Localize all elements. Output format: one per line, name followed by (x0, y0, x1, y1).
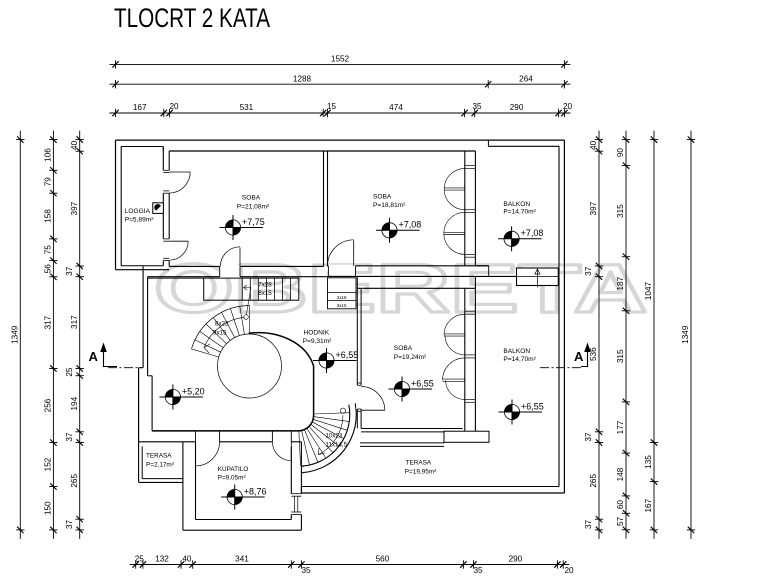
svg-text:90: 90 (616, 148, 625, 158)
svg-text:P=18,81m²: P=18,81m² (373, 202, 406, 209)
svg-text:TERASA: TERASA (406, 460, 432, 467)
svg-text:57: 57 (616, 517, 625, 527)
svg-text:3x15: 3x15 (337, 303, 347, 308)
svg-text:341: 341 (235, 555, 249, 564)
svg-text:P=19,24m²: P=19,24m² (394, 354, 427, 361)
svg-text:256: 256 (44, 398, 53, 412)
svg-text:35: 35 (301, 566, 311, 575)
svg-text:132: 132 (155, 555, 169, 564)
svg-text:194: 194 (70, 396, 79, 410)
svg-text:148: 148 (616, 467, 625, 481)
svg-text:75: 75 (44, 245, 53, 255)
svg-text:79: 79 (44, 177, 53, 187)
svg-text:1288: 1288 (293, 74, 312, 83)
svg-text:40: 40 (70, 140, 79, 150)
svg-text:265: 265 (70, 474, 79, 488)
svg-text:315: 315 (616, 349, 625, 363)
svg-text:37: 37 (65, 520, 74, 530)
svg-text:37: 37 (65, 432, 74, 442)
svg-text:20: 20 (564, 566, 574, 575)
svg-text:37: 37 (584, 266, 593, 276)
svg-text:106: 106 (44, 148, 53, 162)
svg-text:40: 40 (182, 555, 192, 564)
svg-text:KUPATILO: KUPATILO (218, 466, 249, 473)
svg-text:35: 35 (472, 102, 482, 111)
svg-text:P=2,17m²: P=2,17m² (146, 461, 174, 468)
svg-text:25: 25 (65, 367, 74, 377)
svg-text:+5,20: +5,20 (182, 386, 205, 396)
svg-text:+7,08: +7,08 (399, 220, 422, 230)
svg-text:167: 167 (644, 498, 653, 512)
svg-text:+6,55: +6,55 (336, 350, 359, 360)
svg-text:+6,55: +6,55 (411, 378, 434, 388)
svg-text:317: 317 (70, 315, 79, 329)
svg-text:SOBA: SOBA (394, 345, 413, 352)
svg-text:531: 531 (240, 103, 254, 112)
svg-text:37: 37 (584, 432, 593, 442)
svg-text:P=21,08m²: P=21,08m² (237, 203, 270, 210)
svg-text:11x14,5: 11x14,5 (326, 442, 348, 449)
svg-text:152: 152 (44, 457, 53, 471)
svg-text:8x15: 8x15 (258, 290, 272, 297)
svg-text:397: 397 (589, 201, 598, 215)
svg-text:37: 37 (65, 266, 74, 276)
svg-text:37: 37 (584, 520, 593, 530)
svg-text:560: 560 (376, 555, 390, 564)
svg-text:TLOCRT 2 KATA: TLOCRT 2 KATA (114, 3, 270, 33)
svg-text:TERASA: TERASA (146, 453, 172, 460)
svg-text:1047: 1047 (644, 281, 653, 300)
svg-text:15: 15 (327, 102, 337, 111)
svg-text:536: 536 (589, 347, 598, 361)
svg-text:SOBA: SOBA (242, 195, 261, 202)
svg-text:+7,75: +7,75 (242, 217, 265, 227)
svg-text:290: 290 (510, 103, 524, 112)
svg-text:LOGGIA: LOGGIA (125, 208, 151, 215)
svg-text:P=5,89m²: P=5,89m² (125, 217, 155, 224)
svg-text:P=14,70m²: P=14,70m² (503, 209, 536, 216)
svg-text:8x23: 8x23 (215, 321, 229, 328)
svg-text:60: 60 (616, 500, 625, 510)
svg-text:20: 20 (169, 102, 179, 111)
svg-text:150: 150 (44, 501, 53, 515)
svg-text:A: A (89, 349, 99, 364)
svg-text:P=14,70m²: P=14,70m² (503, 356, 536, 363)
svg-text:56: 56 (44, 264, 53, 274)
svg-text:P=9,05m²: P=9,05m² (218, 475, 246, 482)
svg-text:10x23: 10x23 (326, 433, 343, 440)
svg-text:BALKON: BALKON (503, 201, 530, 208)
svg-text:40: 40 (589, 140, 598, 150)
svg-text:A: A (574, 349, 584, 364)
svg-text:1349: 1349 (11, 325, 20, 344)
svg-text:167: 167 (133, 103, 147, 112)
svg-text:2x18: 2x18 (337, 295, 347, 300)
svg-text:265: 265 (589, 474, 598, 488)
svg-text:+8,76: +8,76 (244, 486, 267, 496)
svg-text:SOBA: SOBA (373, 193, 392, 200)
svg-text:9x15: 9x15 (213, 330, 227, 337)
svg-text:20: 20 (563, 102, 573, 111)
svg-text:177: 177 (616, 420, 625, 434)
svg-text:P=19,95m²: P=19,95m² (405, 468, 436, 475)
svg-text:290: 290 (509, 555, 523, 564)
svg-text:1349: 1349 (681, 325, 690, 344)
svg-text:+7,08: +7,08 (521, 228, 544, 238)
svg-text:397: 397 (70, 201, 79, 215)
svg-text:P=9,31m²: P=9,31m² (303, 338, 333, 345)
svg-text:1552: 1552 (331, 55, 350, 64)
svg-text:317: 317 (44, 315, 53, 329)
svg-text:135: 135 (644, 455, 653, 469)
svg-text:264: 264 (519, 74, 533, 83)
svg-text:+6,55: +6,55 (521, 401, 544, 411)
svg-text:7x28: 7x28 (258, 281, 272, 288)
svg-text:474: 474 (389, 103, 403, 112)
svg-text:35: 35 (473, 566, 483, 575)
svg-text:158: 158 (44, 209, 53, 223)
svg-text:HODNIK: HODNIK (304, 330, 330, 337)
svg-text:315: 315 (616, 204, 625, 218)
svg-text:BALKON: BALKON (503, 348, 530, 355)
svg-text:187: 187 (616, 276, 625, 290)
svg-text:25: 25 (135, 555, 145, 564)
